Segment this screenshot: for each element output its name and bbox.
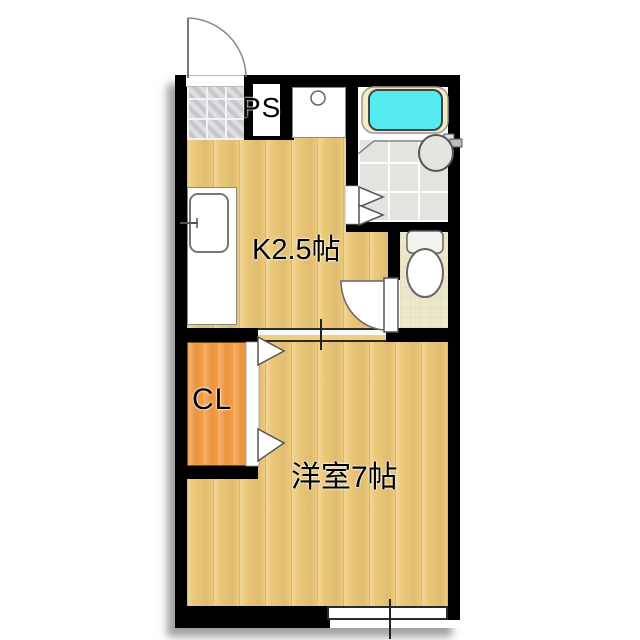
pipe-space-label: PS (242, 92, 281, 124)
closet-label: CL (192, 383, 232, 417)
left-wall (175, 75, 187, 628)
bath-kitchen-wall-upper (346, 75, 358, 188)
bathroom-bottom-wall (346, 222, 460, 232)
room-opening (258, 328, 386, 342)
entry-door-opening (186, 75, 244, 87)
washing-machine-pan (292, 87, 346, 138)
bathroom-tile-floor (358, 140, 448, 222)
kitchen-sink (189, 193, 229, 253)
genkan-tile-floor (187, 82, 244, 140)
bathroom-floor-upper (358, 87, 448, 140)
right-wall (448, 75, 460, 620)
closet-bottom-wall (175, 466, 258, 479)
kitchen-label: K2.5帖 (252, 226, 341, 268)
western-room-label: 洋室7帖 (291, 452, 398, 496)
toilet-room-floor (400, 232, 448, 328)
bottom-wall (175, 606, 330, 628)
boundary-wall-left (175, 328, 258, 342)
sliding-window (327, 606, 448, 620)
boundary-wall-right (386, 328, 460, 342)
toilet-left-wall (388, 232, 400, 280)
entry-door-swing-arc (188, 18, 246, 77)
floorplan-canvas: K2.5帖 洋室7帖 CL PS (0, 0, 640, 640)
